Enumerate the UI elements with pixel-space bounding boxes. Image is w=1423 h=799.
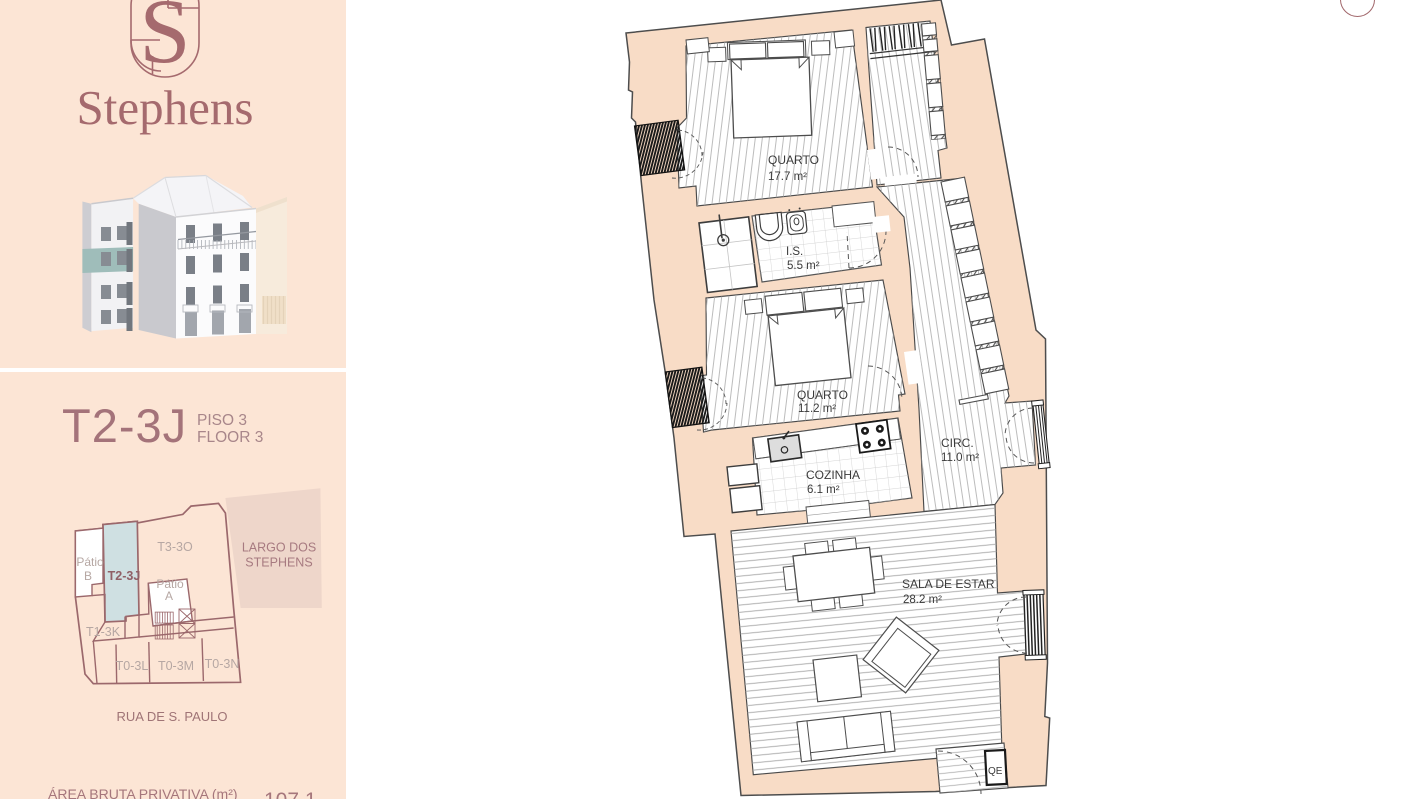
svg-text:T3-3O: T3-3O [157, 540, 193, 554]
svg-text:Pátio: Pátio [76, 555, 104, 569]
svg-text:LARGO DOS: LARGO DOS [242, 541, 316, 555]
svg-text:QE: QE [988, 766, 1003, 777]
svg-text:QUARTO: QUARTO [797, 388, 848, 402]
svg-text:A: A [165, 589, 173, 603]
svg-text:B: B [84, 569, 92, 583]
svg-text:T0-3N: T0-3N [205, 657, 240, 671]
svg-text:PISO 3: PISO 3 [197, 412, 247, 429]
svg-text:17.7 m²: 17.7 m² [768, 171, 807, 183]
svg-text:QUARTO: QUARTO [768, 153, 819, 167]
svg-text:T0-3L: T0-3L [116, 659, 149, 673]
svg-text:T0-3M: T0-3M [158, 659, 194, 673]
svg-text:T2-3J: T2-3J [62, 399, 187, 452]
svg-text:I.S.: I.S. [786, 246, 803, 258]
svg-text:CIRC.: CIRC. [941, 436, 974, 450]
svg-text:COZINHA: COZINHA [806, 468, 860, 482]
svg-text:S: S [139, 0, 190, 82]
svg-text:11.0 m²: 11.0 m² [941, 452, 979, 464]
svg-text:107.1: 107.1 [264, 789, 317, 799]
svg-text:6.1 m²: 6.1 m² [807, 484, 840, 496]
svg-text:T2-3J: T2-3J [108, 569, 141, 583]
svg-text:11.2 m²: 11.2 m² [798, 403, 836, 415]
svg-text:ÁREA BRUTA PRIVATIVA (m²): ÁREA BRUTA PRIVATIVA (m²) [48, 786, 238, 799]
svg-text:SALA DE ESTAR: SALA DE ESTAR [902, 577, 995, 591]
svg-text:T1-3K: T1-3K [86, 625, 121, 639]
svg-text:28.2 m²: 28.2 m² [903, 594, 942, 606]
svg-text:Stephens: Stephens [77, 80, 254, 135]
svg-text:FLOOR 3: FLOOR 3 [197, 429, 263, 446]
svg-text:RUA DE S. PAULO: RUA DE S. PAULO [116, 709, 227, 724]
svg-text:STEPHENS: STEPHENS [245, 556, 312, 570]
svg-text:5.5 m²: 5.5 m² [787, 260, 820, 272]
